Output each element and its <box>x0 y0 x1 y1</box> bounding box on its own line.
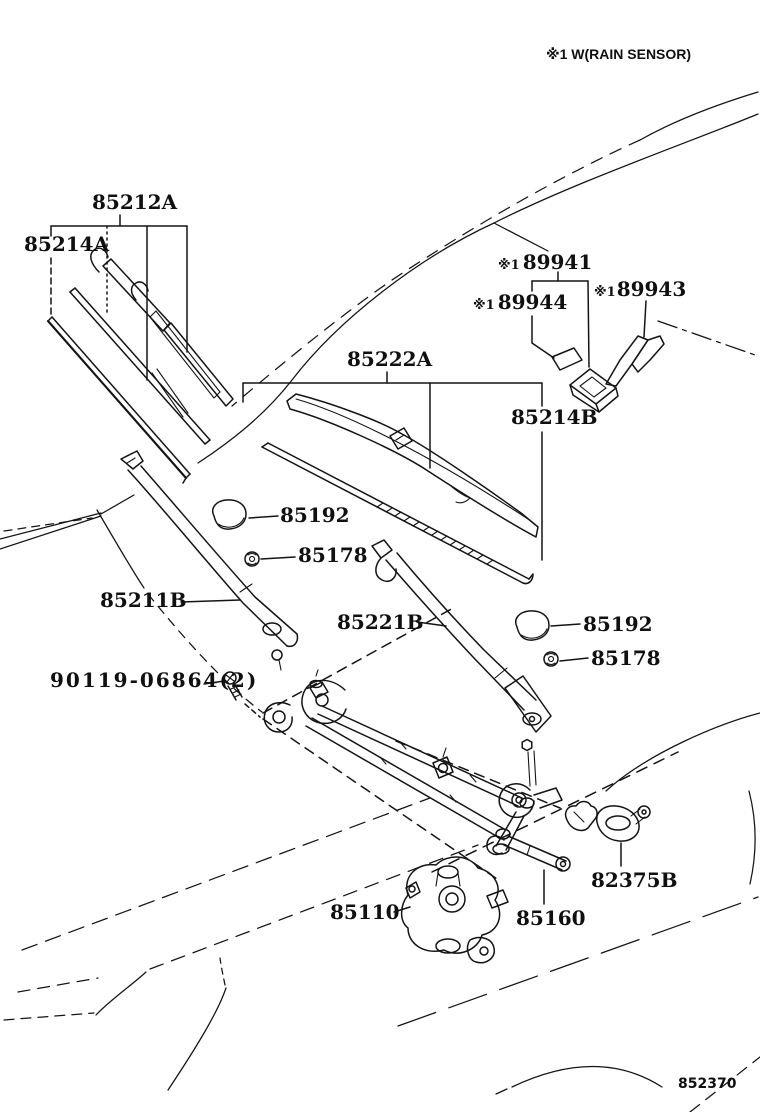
rain-sensor-note: ※1 W(RAIN SENSOR) <box>546 46 691 63</box>
sensor-cover-89943-icon <box>606 336 664 386</box>
part-label-85214B: 85214B <box>511 407 597 427</box>
part-label-85212A: 85212A <box>92 192 177 212</box>
part-label-90119-06864: 90119-06864(2) <box>50 670 258 690</box>
diagram-code: 852370 <box>678 1076 736 1092</box>
wiper-blade-assembly-left <box>48 248 233 483</box>
wiper-rubber-85214A-icon <box>48 317 190 483</box>
part-label-85221B: 85221B <box>337 612 423 632</box>
part-label-85178-right: 85178 <box>591 648 661 668</box>
footnote-mark: ※1 <box>473 298 495 313</box>
footnote-mark: ※1 <box>498 258 520 273</box>
part-label-89943: ※189943 <box>594 279 686 299</box>
part-label-85178-left: 85178 <box>298 545 368 565</box>
part-label-85110: 85110 <box>330 902 400 922</box>
part-label-85160: 85160 <box>516 908 586 928</box>
motor-icon <box>402 857 508 963</box>
parts-diagram-page: ※1 W(RAIN SENSOR) 85212A 85214A ※189941 … <box>0 0 760 1112</box>
wiper-arm-left <box>121 451 297 670</box>
sensor-pad-89944-icon <box>552 348 582 370</box>
diagram-line-art <box>0 0 760 1112</box>
wiper-linkage <box>264 670 562 854</box>
part-label-85214A: 85214A <box>24 234 109 254</box>
wiper-blade-icon <box>91 248 233 417</box>
part-label-82375B: 82375B <box>591 870 677 890</box>
pivot-left-icon <box>264 670 346 732</box>
part-label-85192-right: 85192 <box>583 614 653 634</box>
clip-icon <box>566 802 650 842</box>
footnote-mark: ※1 <box>594 285 616 300</box>
part-label-89941: ※189941 <box>498 252 592 272</box>
part-label-85211B: 85211B <box>100 590 186 610</box>
part-label-85192-left: 85192 <box>280 505 350 525</box>
part-label-85222A: 85222A <box>347 349 432 369</box>
rod-joint-icon <box>433 748 453 778</box>
rain-sensor-parts <box>552 336 664 412</box>
part-label-89944: ※189944 <box>473 292 567 312</box>
